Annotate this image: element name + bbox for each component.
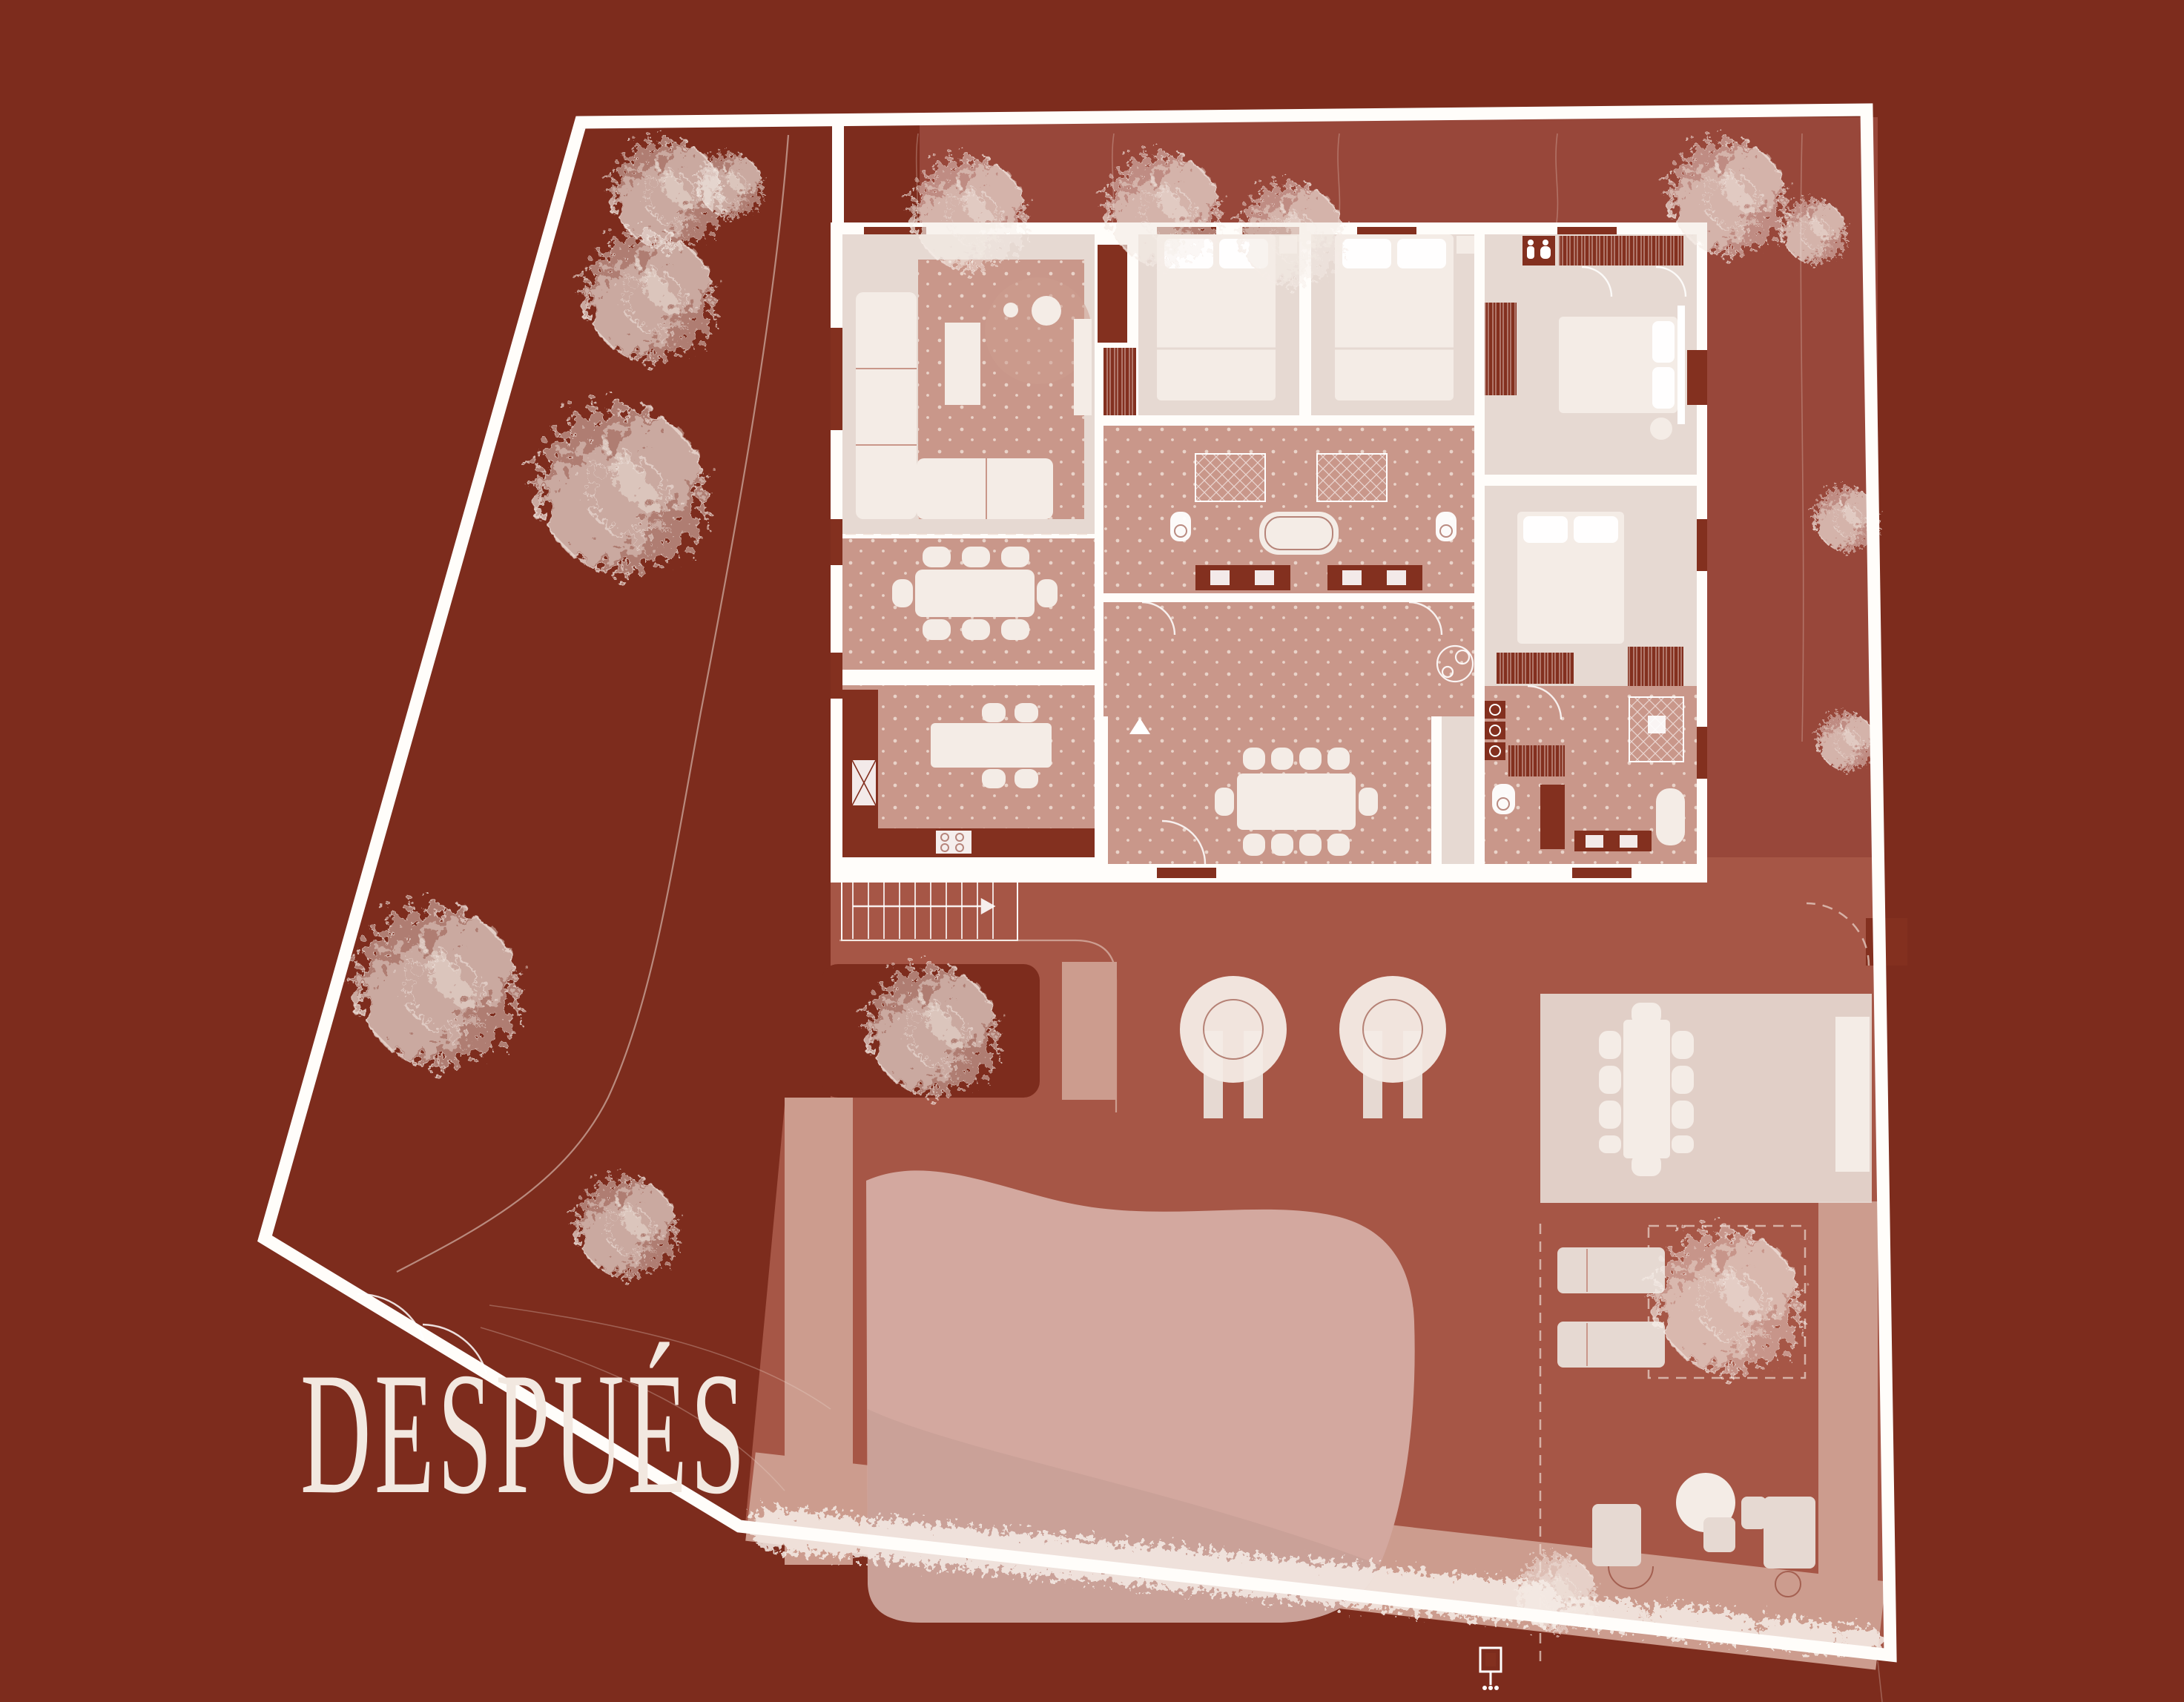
closet-icon: [1628, 647, 1683, 686]
stool-icon: [1650, 418, 1672, 440]
vanity-icon: [1195, 565, 1290, 590]
entry-vestibule: [1485, 234, 1697, 297]
washer-icon: [1485, 701, 1505, 760]
master-bedroom-1: [1485, 297, 1706, 475]
sun-lounger-icon: [1557, 1247, 1665, 1293]
toilet-icon: [1436, 512, 1456, 541]
site-plan-page: DESPUÉS: [0, 0, 2184, 1702]
tree-icon: [358, 907, 518, 1066]
tree-icon: [586, 233, 713, 360]
tree-icon: [538, 406, 705, 573]
tree-icon: [1671, 140, 1786, 255]
outdoor-dining-pavilion: [1540, 994, 1872, 1203]
bathrooms: [1103, 426, 1474, 593]
site-plan-svg: DESPUÉS: [0, 0, 2184, 1702]
bed-icon: [1335, 234, 1454, 400]
living-room: [842, 234, 1095, 534]
tree-icon: [913, 157, 1025, 269]
bathtub-icon: [1259, 512, 1339, 555]
toilet-icon: [1492, 784, 1515, 814]
closet-icon: [1497, 653, 1574, 684]
nightstand-icon: [1456, 236, 1474, 254]
toilet-icon: [1170, 512, 1191, 541]
shower-icon: [1317, 454, 1387, 501]
hallway: [1103, 602, 1474, 716]
master-bedroom-2: [1485, 486, 1697, 686]
kitchen-counter: [842, 690, 878, 828]
tv-console-icon: [1074, 319, 1092, 415]
vanity-icon: [1574, 831, 1652, 851]
closet-icon: [1485, 303, 1517, 395]
sun-lounger-icon: [1557, 1322, 1665, 1368]
family-dining-room: [1108, 716, 1431, 864]
coffee-table-icon: [945, 323, 980, 405]
kitchen: [842, 685, 1095, 857]
stove-icon: [936, 831, 971, 854]
dining-room: [842, 538, 1095, 670]
bathtub-icon: [1656, 788, 1685, 845]
tree-icon: [869, 967, 997, 1095]
shower-icon: [1195, 454, 1265, 501]
plan-title: DESPUÉS: [300, 1337, 748, 1530]
vanity-icon: [1327, 565, 1422, 590]
tree-icon: [1241, 183, 1343, 286]
wardrobe-icon: [1559, 236, 1683, 265]
rear-lobby: [1442, 716, 1474, 864]
bedroom-3: [1311, 234, 1474, 415]
floor-lamp-icon: [1032, 296, 1061, 326]
bed-icon: [1517, 512, 1624, 644]
bed-icon: [1559, 306, 1685, 424]
tree-icon: [1107, 154, 1219, 265]
outdoor-kitchen-counter: [1835, 1017, 1870, 1172]
exterior-stairs: [842, 874, 1017, 940]
tree-icon: [1657, 1230, 1800, 1373]
chimney-block: [1098, 245, 1127, 343]
closet-icon: [1508, 745, 1565, 776]
tree-icon: [699, 154, 762, 217]
tree-icon: [577, 1178, 676, 1277]
master-bathroom: [1485, 686, 1697, 864]
